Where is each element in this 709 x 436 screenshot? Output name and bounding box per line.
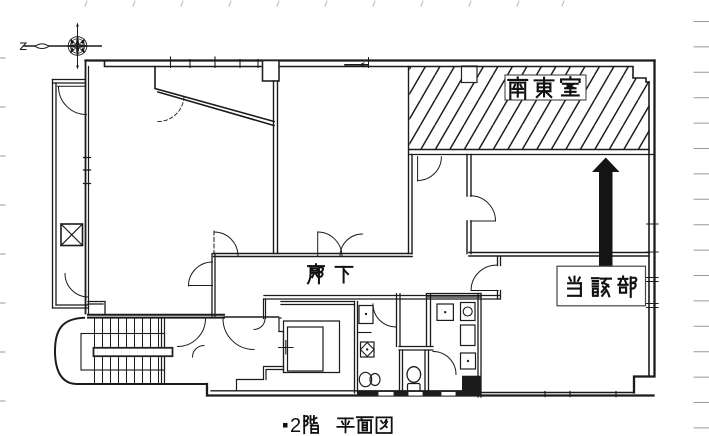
svg-text:2: 2 (290, 415, 301, 436)
